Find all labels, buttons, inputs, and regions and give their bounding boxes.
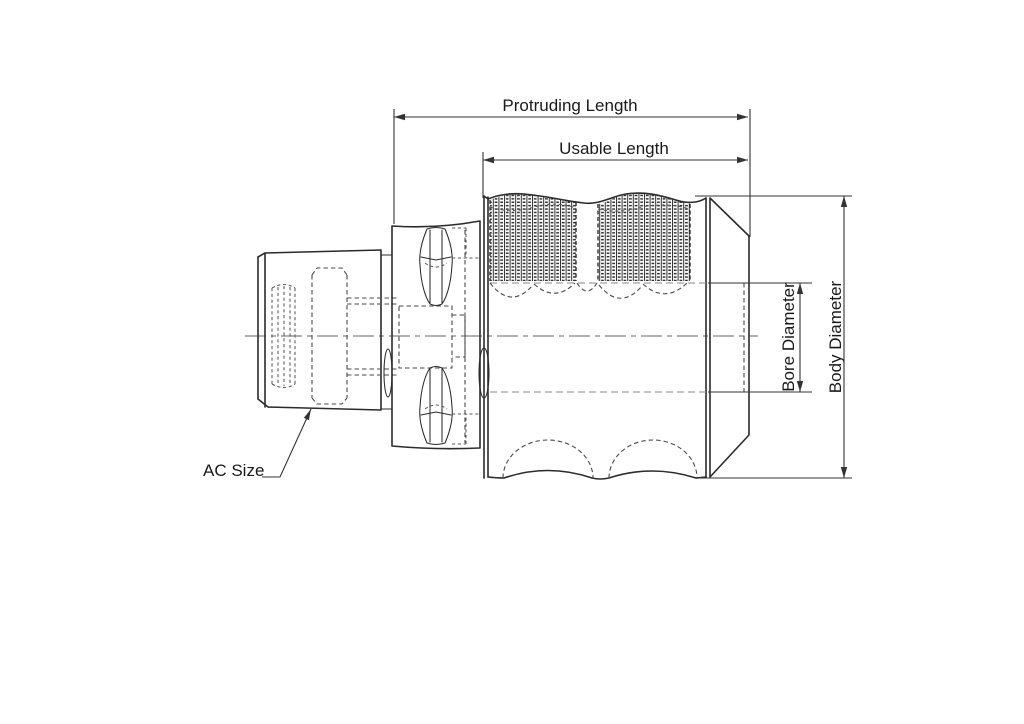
ac-size-label: AC Size — [203, 461, 264, 480]
body-right-end — [706, 198, 749, 477]
leader-arrowhead — [304, 409, 311, 420]
dimension-bore-diameter: Bore Diameter — [708, 282, 812, 392]
taper-shank — [258, 250, 399, 410]
protruding-length-label: Protruding Length — [502, 96, 637, 115]
label-ac-size: AC Size — [203, 409, 311, 480]
drive-slot-top — [420, 228, 480, 306]
drive-slot-bottom — [420, 367, 480, 445]
bore-diameter-label: Bore Diameter — [779, 282, 798, 392]
arrowhead-left — [483, 157, 494, 163]
technical-drawing-page: Protruding Length Usable Length Bore Dia… — [0, 0, 1024, 724]
dimension-body-diameter: Body Diameter — [695, 196, 852, 478]
arrowhead-left — [394, 114, 405, 120]
arrowhead-right — [737, 114, 748, 120]
body-bottom-outline — [488, 471, 706, 480]
dimension-usable-length: Usable Length — [483, 139, 748, 198]
junction-detail-left — [384, 349, 392, 397]
knurl-recess-scallops — [490, 283, 687, 298]
arrowhead-top — [841, 196, 847, 207]
arrowhead-bottom — [841, 467, 847, 478]
flange-hidden-bore-rect — [399, 306, 465, 368]
leader-line — [262, 409, 311, 477]
shank-neck-edges — [381, 255, 392, 409]
usable-length-label: Usable Length — [559, 139, 669, 158]
arrowhead-right — [737, 157, 748, 163]
body-diameter-label: Body Diameter — [826, 280, 845, 393]
shank-outline — [258, 250, 381, 410]
flange — [384, 221, 489, 449]
tool-holder-drawing: Protruding Length Usable Length Bore Dia… — [0, 0, 1024, 724]
body-front-rim — [484, 196, 488, 478]
